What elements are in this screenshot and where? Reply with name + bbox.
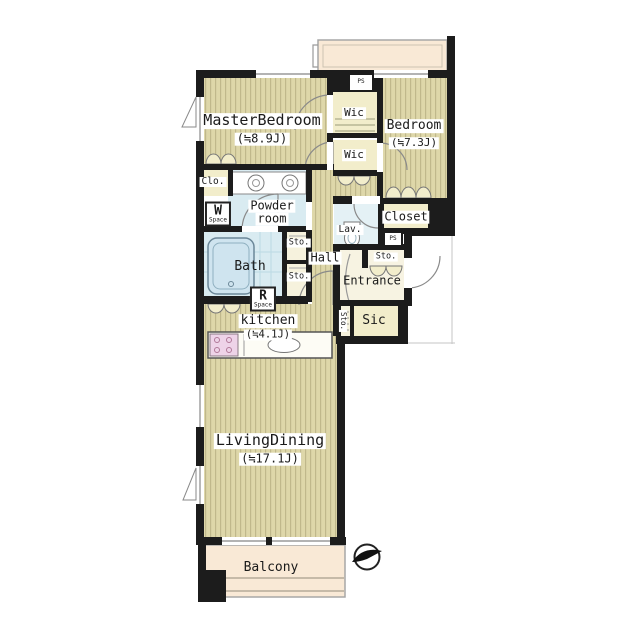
north-arrow-icon [352, 545, 382, 570]
living-dining-area: (≒17.1J) [239, 453, 301, 466]
master-bedroom-label: MasterBedroom [201, 113, 322, 129]
wic-bottom-label: Wic [342, 149, 366, 161]
floorplan-graphics [0, 0, 640, 640]
floor-plan: MasterBedroom (≒8.9J) Wic Wic Bedroom (≒… [0, 0, 640, 640]
fridge-space-box: R Space [250, 287, 276, 312]
powder-room-label-2: room [256, 213, 289, 226]
bath-label: Bath [232, 260, 267, 274]
closet-label: Closet [382, 211, 429, 224]
kitchen-area: (≒4.1J) [244, 329, 292, 340]
ps-2-label: PS [387, 236, 398, 242]
storage-4-label: Sto. [339, 310, 347, 332]
casement-windows [182, 97, 196, 500]
storage-3-label: Sto. [374, 253, 398, 262]
fridge-space-sub: Space [254, 303, 272, 309]
powder-room-label-1: Powder [248, 200, 295, 213]
stove [210, 334, 238, 356]
bedroom-area: (≒7.3J) [389, 137, 439, 149]
balcony-label: Balcony [242, 561, 301, 575]
washer-space-sub: Space [209, 218, 227, 224]
living-dining-label: LivingDining [214, 433, 326, 449]
bedroom-label: Bedroom [385, 119, 444, 133]
entrance-label: Entrance [341, 275, 403, 288]
front-door-arc [408, 256, 440, 288]
lav-label: Lav. [337, 225, 364, 235]
storage-1-label: Sto. [287, 239, 311, 248]
washer-space-box: W Space [205, 202, 231, 227]
clo-label: Clo. [200, 177, 227, 187]
master-bedroom-area: (≒8.9J) [235, 133, 290, 146]
kitchen-label: kitchen [239, 314, 298, 328]
storage-2-label: Sto. [287, 273, 311, 282]
wic-top-label: Wic [342, 107, 366, 119]
sic-label: Sic [360, 314, 387, 328]
ps-1-label: PS [355, 79, 366, 85]
hall-label: Hall [309, 252, 342, 265]
